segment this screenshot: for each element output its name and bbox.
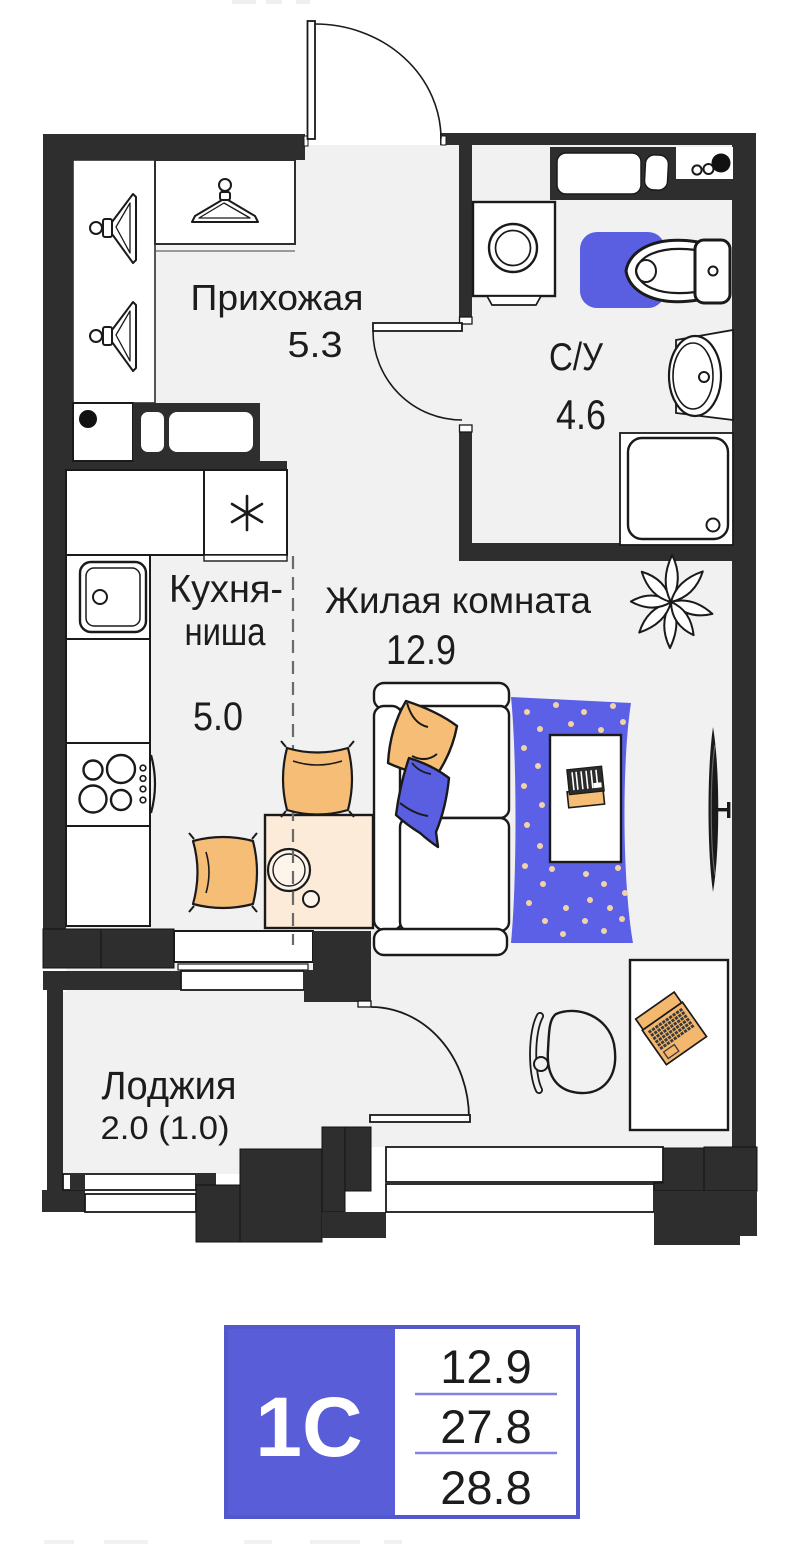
svg-text:28.8: 28.8: [440, 1461, 531, 1514]
svg-text:4.6: 4.6: [556, 391, 606, 438]
svg-text:1С: 1С: [255, 1380, 362, 1474]
svg-text:С/У: С/У: [549, 336, 603, 379]
svg-text:12.9: 12.9: [440, 1340, 531, 1393]
svg-text:2.0 (1.0): 2.0 (1.0): [101, 1110, 230, 1146]
svg-text:Кухня-: Кухня-: [169, 568, 283, 611]
svg-text:ниша: ниша: [185, 611, 266, 654]
svg-text:5.3: 5.3: [288, 324, 343, 365]
svg-text:5.0: 5.0: [193, 695, 243, 739]
svg-text:Прихожая: Прихожая: [191, 277, 364, 318]
svg-text:Жилая комната: Жилая комната: [325, 580, 591, 621]
svg-text:Лоджия: Лоджия: [102, 1064, 237, 1108]
svg-text:12.9: 12.9: [386, 626, 456, 673]
svg-text:27.8: 27.8: [440, 1400, 531, 1453]
